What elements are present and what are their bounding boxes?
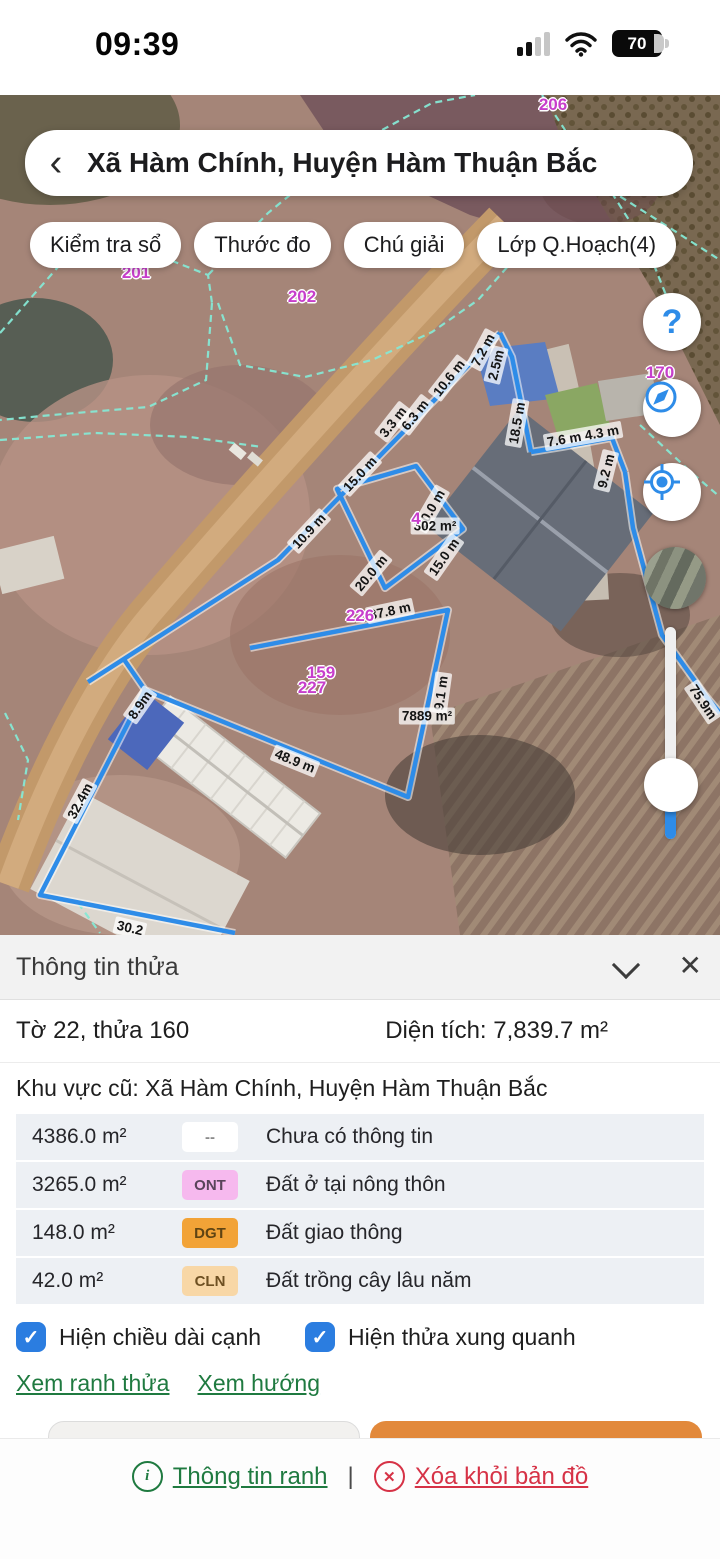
land-code-badge: DGT	[182, 1218, 238, 1248]
app-screen: 09:39 70	[0, 0, 720, 1559]
map-search-header: ‹ Xã Hàm Chính, Huyện Hàm Thuận Bắc	[25, 130, 693, 196]
land-code-badge: ONT	[182, 1170, 238, 1200]
basemap-layer-toggle-button[interactable]	[644, 547, 706, 609]
zoom-slider-thumb[interactable]	[644, 758, 698, 812]
close-icon[interactable]: ✕	[679, 949, 702, 982]
clock: 09:39	[95, 26, 179, 63]
land-desc: Đất ở tại nông thôn	[266, 1173, 446, 1197]
land-area: 3265.0 m²	[32, 1173, 182, 1197]
crosshair-icon	[643, 463, 681, 501]
parcel-id-label: 226	[346, 606, 374, 626]
parcel-info-panel: Thông tin thửa ✕ Tờ 22, thửa 160 Diện tí…	[0, 935, 720, 1438]
remove-from-map-link[interactable]: ✕ Xóa khỏi bản đồ	[374, 1461, 588, 1492]
planning-layers-button[interactable]: Lớp Q.Hoạch(4)	[477, 222, 676, 268]
land-desc: Chưa có thông tin	[266, 1125, 433, 1149]
battery-percent: 70	[628, 34, 647, 54]
check-book-button[interactable]: Kiểm tra sổ	[30, 222, 181, 268]
remove-from-map-label: Xóa khỏi bản đồ	[415, 1463, 588, 1491]
parcel-id-label: 206	[539, 95, 567, 115]
land-desc: Đất giao thông	[266, 1221, 403, 1245]
legend-button[interactable]: Chú giải	[344, 222, 465, 268]
land-area: 148.0 m²	[32, 1221, 182, 1245]
footer-bar: i Thông tin ranh | ✕ Xóa khỏi bản đồ	[0, 1438, 720, 1559]
page-title: Xã Hàm Chính, Huyện Hàm Thuận Bắc	[87, 147, 597, 179]
chevron-down-icon[interactable]	[612, 951, 640, 979]
compass-button[interactable]	[643, 379, 701, 437]
land-area: 42.0 m²	[32, 1269, 182, 1293]
status-bar: 09:39 70	[0, 0, 720, 95]
map-toolbar: Kiểm tra sổ Thước đo Chú giải Lớp Q.Hoạc…	[30, 222, 676, 268]
parcel-id-label: 227	[298, 678, 326, 698]
land-use-row: 3265.0 m² ONT Đất ở tại nông thôn	[16, 1162, 704, 1208]
boundary-info-link[interactable]: i Thông tin ranh	[132, 1461, 328, 1492]
cellular-signal-icon	[517, 32, 550, 56]
checkbox-checked-icon[interactable]: ✓	[16, 1322, 46, 1352]
sheet-parcel-number: Tờ 22, thửa 160	[16, 1017, 189, 1045]
checkbox-label: Hiện thửa xung quanh	[348, 1324, 576, 1351]
locate-button[interactable]	[643, 463, 701, 521]
view-boundary-link[interactable]: Xem ranh thửa	[16, 1370, 169, 1397]
land-use-table: 4386.0 m² -- Chưa có thông tin 3265.0 m²…	[16, 1114, 704, 1304]
land-area: 4386.0 m²	[32, 1125, 182, 1149]
checkbox-label: Hiện chiều dài cạnh	[59, 1324, 261, 1351]
separator: |	[348, 1463, 354, 1491]
compass-icon	[643, 379, 679, 415]
panel-title: Thông tin thửa	[16, 953, 179, 982]
boundary-info-label: Thông tin ranh	[173, 1463, 328, 1491]
checkbox-show-edge-lengths[interactable]: ✓ Hiện chiều dài cạnh	[16, 1322, 261, 1352]
checkbox-checked-icon[interactable]: ✓	[305, 1322, 335, 1352]
land-code-badge: CLN	[182, 1266, 238, 1296]
info-icon: i	[132, 1461, 163, 1492]
parcel-id-label: 4	[411, 509, 420, 529]
parcel-area: Diện tích: 7,839.7 m²	[385, 1017, 608, 1045]
remove-icon: ✕	[374, 1461, 405, 1492]
land-use-row: 148.0 m² DGT Đất giao thông	[16, 1210, 704, 1256]
help-button[interactable]: ?	[643, 293, 701, 351]
land-use-row: 42.0 m² CLN Đất trồng cây lâu năm	[16, 1258, 704, 1304]
parcel-summary-row: Tờ 22, thửa 160 Diện tích: 7,839.7 m²	[0, 1000, 720, 1063]
view-direction-link[interactable]: Xem hướng	[197, 1370, 320, 1397]
panel-header: Thông tin thửa ✕	[0, 935, 720, 1000]
land-code-badge: --	[182, 1122, 238, 1152]
land-desc: Đất trồng cây lâu năm	[266, 1269, 471, 1293]
checkbox-show-neighbor-parcels[interactable]: ✓ Hiện thửa xung quanh	[305, 1322, 576, 1352]
question-mark-icon: ?	[662, 303, 683, 342]
back-button[interactable]: ‹	[25, 133, 87, 193]
display-options: ✓ Hiện chiều dài cạnh ✓ Hiện thửa xung q…	[0, 1306, 720, 1352]
parcel-id-label: 202	[288, 287, 316, 307]
wifi-icon	[564, 31, 598, 57]
measurement-label: 7889 m²	[399, 708, 455, 725]
satellite-imagery	[0, 95, 720, 935]
panel-links: Xem ranh thửa Xem hướng	[0, 1352, 720, 1397]
measure-tool-button[interactable]: Thước đo	[194, 222, 330, 268]
old-region-text: Khu vực cũ: Xã Hàm Chính, Huyện Hàm Thuậ…	[0, 1063, 720, 1112]
land-use-row: 4386.0 m² -- Chưa có thông tin	[16, 1114, 704, 1160]
battery-icon: 70	[612, 30, 662, 57]
map-canvas[interactable]: 7.2 m2.5m10.6 m3.3 m6.3 m18.5 m7.6 m 4.3…	[0, 95, 720, 935]
